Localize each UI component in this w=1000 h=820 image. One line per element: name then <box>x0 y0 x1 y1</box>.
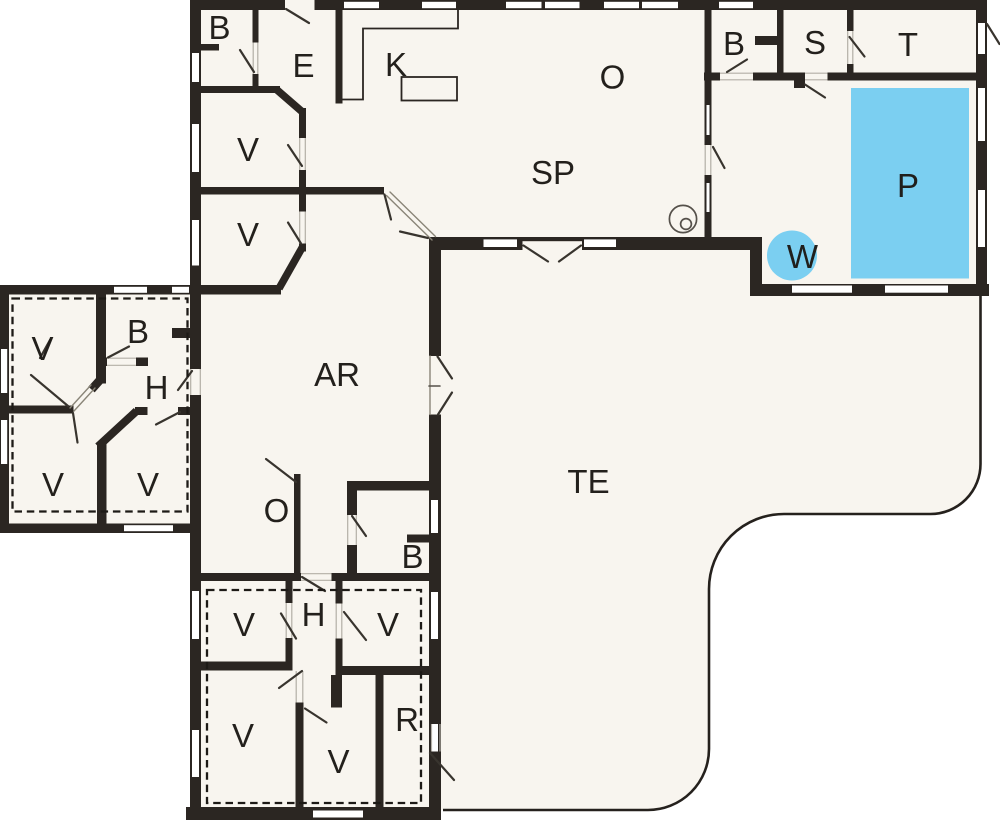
svg-text:V: V <box>233 606 255 643</box>
svg-text:V: V <box>327 743 349 780</box>
svg-text:V: V <box>237 216 259 253</box>
svg-text:E: E <box>292 47 314 84</box>
svg-text:V: V <box>42 466 64 503</box>
svg-text:H: H <box>145 369 169 406</box>
svg-text:B: B <box>208 9 230 46</box>
svg-text:SP: SP <box>531 154 575 191</box>
svg-text:H: H <box>302 596 326 633</box>
svg-text:B: B <box>723 25 745 62</box>
svg-text:B: B <box>401 538 423 575</box>
svg-text:P: P <box>897 167 919 204</box>
svg-text:B: B <box>127 313 149 350</box>
svg-text:K: K <box>385 46 407 83</box>
svg-text:V: V <box>232 717 254 754</box>
svg-text:V: V <box>31 330 53 367</box>
svg-text:O: O <box>264 492 290 529</box>
svg-text:O: O <box>600 59 626 96</box>
svg-text:T: T <box>898 26 918 63</box>
svg-text:AR: AR <box>314 356 360 393</box>
svg-text:R: R <box>395 701 419 738</box>
svg-text:V: V <box>237 131 259 168</box>
svg-text:V: V <box>377 606 399 643</box>
svg-text:V: V <box>137 466 159 503</box>
svg-text:TE: TE <box>567 463 609 500</box>
svg-text:S: S <box>804 24 826 61</box>
svg-text:W: W <box>787 238 819 275</box>
